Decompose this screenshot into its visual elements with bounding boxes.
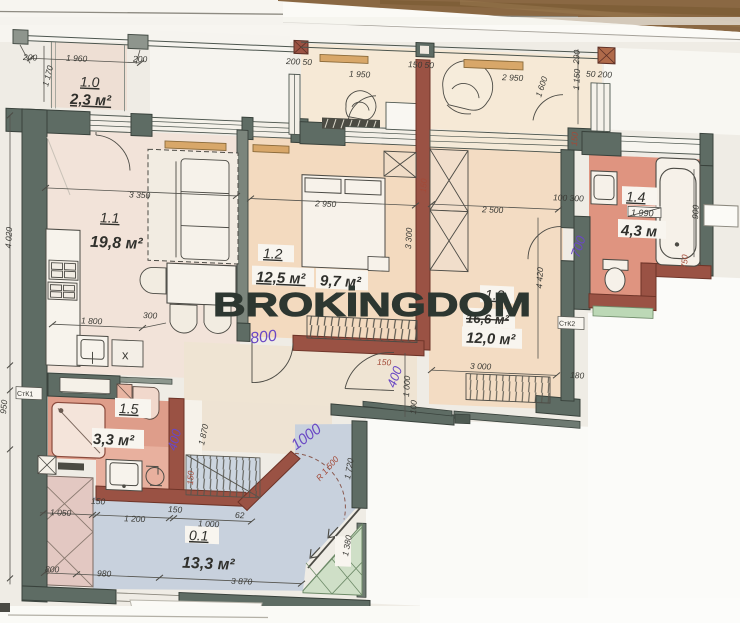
svg-text:200: 200 [132, 54, 147, 65]
svg-text:200 50: 200 50 [285, 56, 312, 67]
svg-text:x: x [122, 347, 129, 362]
svg-text:1 000: 1 000 [401, 375, 412, 397]
svg-text:150: 150 [168, 504, 182, 515]
svg-text:3,3 м²: 3,3 м² [93, 431, 135, 450]
svg-text:3 300: 3 300 [403, 227, 414, 249]
svg-text:3 870: 3 870 [231, 576, 253, 587]
svg-text:BROKINGDOM: BROKINGDOM [213, 286, 531, 323]
svg-text:СтК1: СтК1 [17, 391, 33, 399]
svg-text:150 50: 150 50 [408, 59, 434, 70]
svg-text:1 000: 1 000 [198, 518, 220, 529]
svg-text:12,0 м²: 12,0 м² [466, 330, 516, 349]
svg-text:1.2: 1.2 [263, 245, 283, 262]
svg-text:150: 150 [377, 357, 391, 368]
svg-text:900: 900 [690, 204, 701, 219]
svg-text:1.5: 1.5 [119, 400, 139, 417]
svg-text:СтК2: СтК2 [559, 320, 575, 328]
svg-text:100: 100 [408, 399, 419, 414]
svg-text:12,5 м²: 12,5 м² [256, 269, 306, 288]
svg-text:4 420: 4 420 [534, 267, 545, 289]
svg-text:4 020: 4 020 [3, 226, 14, 248]
svg-text:2 950: 2 950 [501, 72, 524, 83]
svg-text:4,3 м: 4,3 м [620, 222, 657, 241]
svg-text:800: 800 [45, 564, 59, 575]
svg-text:62: 62 [235, 510, 245, 520]
svg-text:1 150: 1 150 [571, 68, 582, 90]
svg-text:0.1: 0.1 [189, 527, 208, 544]
svg-text:1 800: 1 800 [81, 315, 103, 326]
svg-text:1 050: 1 050 [50, 507, 72, 518]
svg-text:150: 150 [418, 178, 429, 193]
svg-text:150: 150 [185, 470, 196, 485]
svg-text:13,3 м²: 13,3 м² [182, 555, 235, 574]
svg-text:2 500: 2 500 [481, 204, 504, 215]
svg-text:19,8 м²: 19,8 м² [90, 234, 143, 253]
svg-text:1.1: 1.1 [100, 209, 119, 226]
svg-text:2 950: 2 950 [314, 198, 337, 209]
svg-text:3 000: 3 000 [470, 361, 492, 372]
svg-text:150: 150 [91, 496, 105, 507]
svg-text:2,3 м²: 2,3 м² [69, 91, 112, 110]
svg-text:180: 180 [570, 370, 584, 381]
svg-text:100 300: 100 300 [553, 192, 584, 203]
svg-text:980: 980 [97, 568, 111, 579]
svg-text:1.4: 1.4 [626, 188, 646, 205]
svg-text:3 350: 3 350 [129, 189, 151, 200]
svg-text:300: 300 [143, 310, 157, 321]
svg-text:150: 150 [569, 131, 580, 146]
svg-text:800: 800 [249, 328, 278, 348]
svg-text:1.0: 1.0 [80, 73, 100, 90]
svg-text:200: 200 [22, 52, 37, 63]
svg-text:1 200: 1 200 [124, 513, 146, 524]
svg-text:1 950: 1 950 [349, 69, 371, 80]
svg-text:50 200: 50 200 [586, 69, 612, 80]
svg-text:750: 750 [679, 254, 690, 269]
svg-text:950: 950 [0, 399, 9, 415]
svg-text:1 960: 1 960 [66, 53, 88, 64]
svg-text:290: 290 [571, 49, 582, 65]
